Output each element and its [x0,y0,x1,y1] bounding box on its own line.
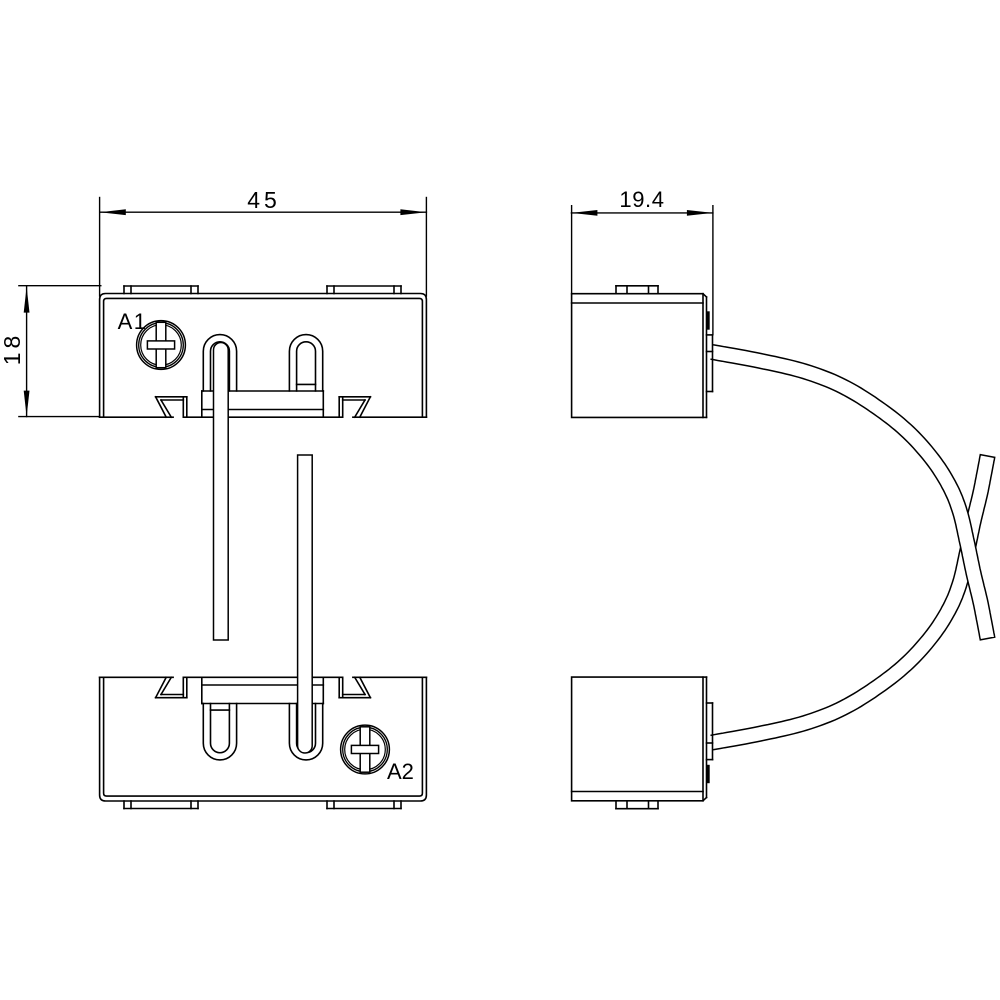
svg-text:A2: A2 [387,759,414,784]
svg-text:45: 45 [247,187,281,213]
svg-text:A1: A1 [118,309,148,334]
svg-text:19.4: 19.4 [619,187,664,212]
svg-text:18: 18 [0,332,25,366]
